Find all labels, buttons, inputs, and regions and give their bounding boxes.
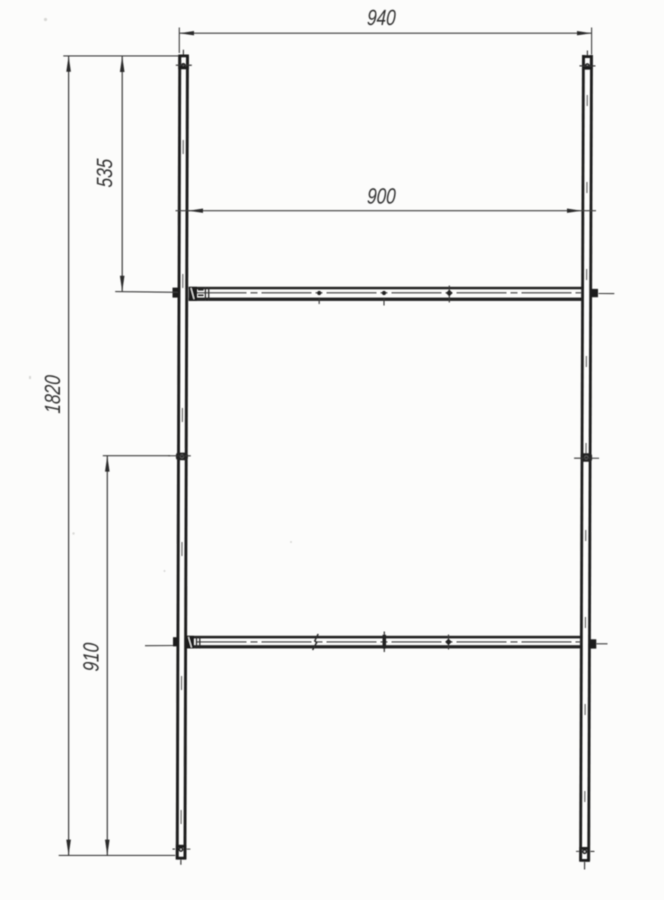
svg-text:940: 940 [366,6,396,31]
svg-text:900: 900 [366,185,396,210]
svg-text:910: 910 [80,642,105,672]
svg-text:535: 535 [93,157,118,188]
svg-text:1820: 1820 [41,375,66,415]
